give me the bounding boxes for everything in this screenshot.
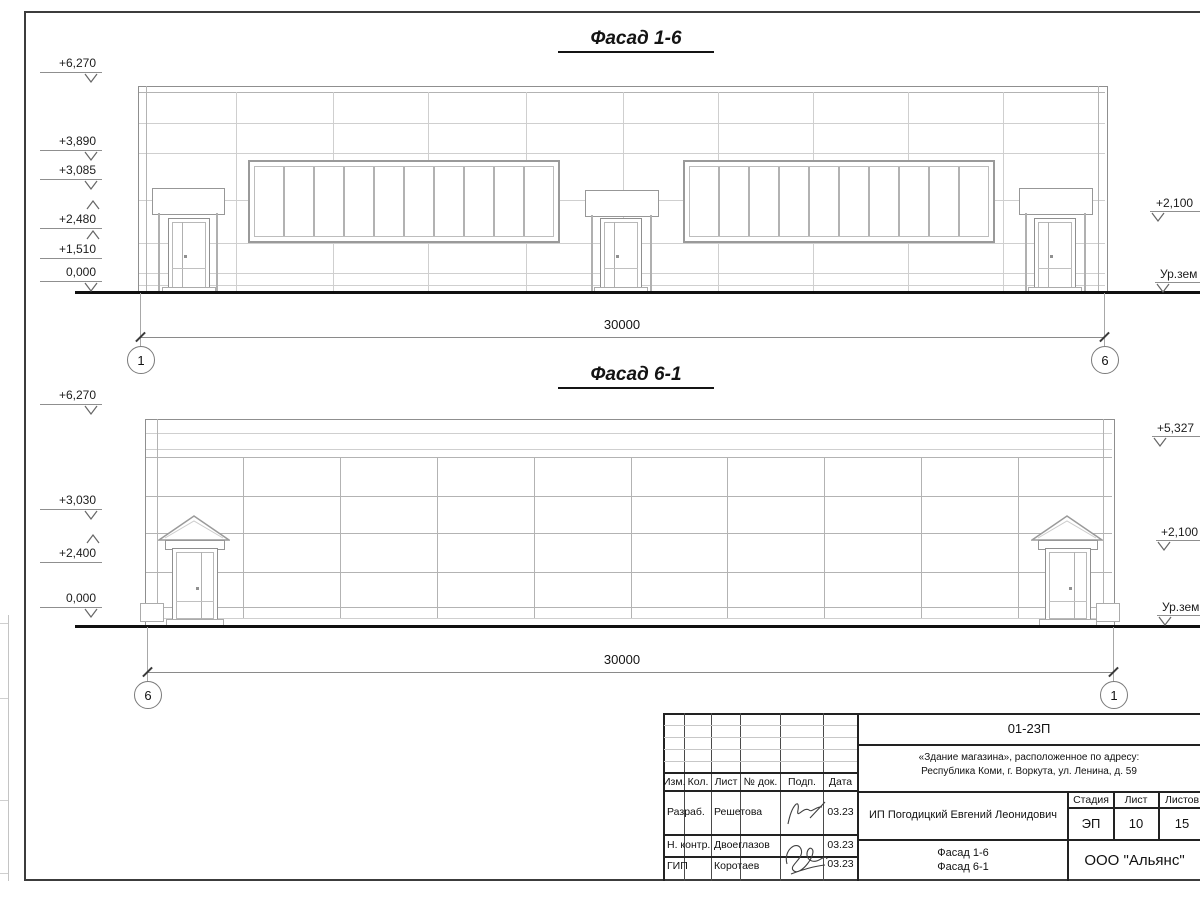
elevation-mark-icon	[84, 73, 98, 83]
row-name: Коротаев	[714, 860, 759, 872]
row-role: Разраб.	[667, 806, 705, 818]
row-role: ГИП	[667, 860, 688, 872]
entrance-door	[168, 218, 210, 292]
stage-value: ЭП	[1069, 816, 1113, 831]
sheet-number: 10	[1114, 816, 1158, 831]
dimension-label: 30000	[592, 652, 652, 667]
entrance-door	[1045, 548, 1091, 623]
sheets-label: Листов	[1160, 794, 1200, 806]
col-kol: Кол.	[685, 776, 711, 788]
frame-left	[24, 11, 26, 881]
object-address-line1: «Здание магазина», расположенное по адре…	[859, 752, 1199, 763]
ground-line	[75, 291, 1200, 294]
dimension-label: 30000	[592, 317, 652, 332]
entrance-canopy	[1019, 188, 1093, 215]
facade-1-6-title: Фасад 1-6	[558, 28, 714, 53]
client-name: ИП Погодицкий Евгений Леонидович	[860, 809, 1066, 821]
company-name: ООО "Альянс"	[1069, 852, 1200, 869]
row-date: 03.23	[824, 806, 857, 818]
signature	[779, 836, 831, 878]
signature	[782, 794, 828, 832]
frame-top	[24, 11, 1200, 13]
col-data: Дата	[824, 776, 857, 788]
row-name: Двоеглазов	[714, 839, 770, 851]
elevation-label: +2,100	[1156, 196, 1193, 210]
row-role: Н. контр.	[667, 839, 710, 851]
col-izm: Изм.	[663, 776, 684, 788]
gable-canopy	[1031, 513, 1103, 541]
elevation-label: 0,000	[42, 265, 96, 279]
facade-6-1-wall	[145, 419, 1115, 628]
ground-level-label: Ур.зем	[1160, 267, 1197, 281]
elevation-label: +3,890	[42, 134, 96, 148]
elevation-label: +3,030	[42, 493, 96, 507]
entrance-door	[172, 548, 218, 623]
stage-label: Стадия	[1069, 794, 1113, 806]
axis-bubble: 1	[127, 346, 155, 374]
entrance-door	[600, 218, 642, 292]
ground-level-label: Ур.зем	[1162, 600, 1199, 614]
entrance-canopy	[585, 190, 659, 217]
axis-bubble: 6	[1091, 346, 1119, 374]
axis-bubble: 6	[134, 681, 162, 709]
sheets-total: 15	[1160, 816, 1200, 831]
gable-canopy	[158, 513, 230, 541]
elevation-label: +3,085	[42, 163, 96, 177]
col-podp: Подп.	[781, 776, 823, 788]
elevation-label: +5,327	[1157, 421, 1194, 435]
frame-bottom	[24, 879, 1200, 881]
col-list: Лист	[712, 776, 740, 788]
elevation-label: +2,480	[42, 212, 96, 226]
object-address-line2: Республика Коми, г. Воркута, ул. Ленина,…	[859, 766, 1199, 777]
entrance-door	[1034, 218, 1076, 292]
elevation-label: +6,270	[42, 388, 96, 402]
elevation-label: 0,000	[42, 591, 96, 605]
content-line2: Фасад 6-1	[860, 861, 1066, 873]
doc-code: 01-23П	[859, 721, 1199, 736]
window-band-left	[248, 160, 560, 243]
content-line1: Фасад 1-6	[860, 847, 1066, 859]
ground-line	[75, 625, 1200, 628]
col-ndok: № док.	[741, 776, 780, 788]
elevation-label: +2,400	[42, 546, 96, 560]
elevation-label: +1,510	[42, 242, 96, 256]
elevation-label: +6,270	[42, 56, 96, 70]
sheet-label: Лист	[1114, 794, 1158, 806]
axis-bubble: 1	[1100, 681, 1128, 709]
adjacent-sheet-edge	[8, 615, 9, 881]
facade-6-1-title: Фасад 6-1	[558, 364, 714, 389]
drawing-sheet: Фасад 1-6	[0, 0, 1200, 900]
elevation-label: +2,100	[1161, 525, 1198, 539]
window-band-right	[683, 160, 995, 243]
row-name: Решетова	[714, 806, 762, 818]
entrance-canopy	[152, 188, 225, 215]
